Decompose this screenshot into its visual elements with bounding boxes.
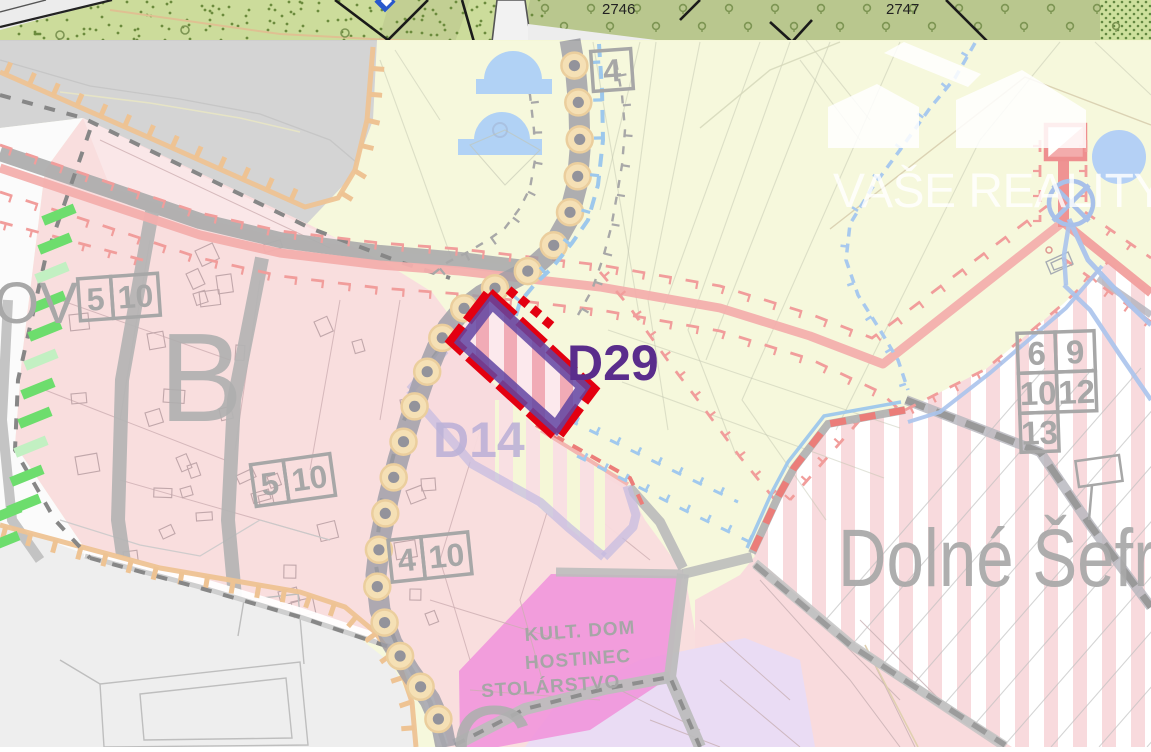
svg-text:D29: D29 <box>567 335 659 391</box>
svg-text:2747: 2747 <box>886 1 919 18</box>
svg-text:2746: 2746 <box>602 1 635 18</box>
svg-text:VAŠE REALITY: VAŠE REALITY <box>833 164 1151 218</box>
